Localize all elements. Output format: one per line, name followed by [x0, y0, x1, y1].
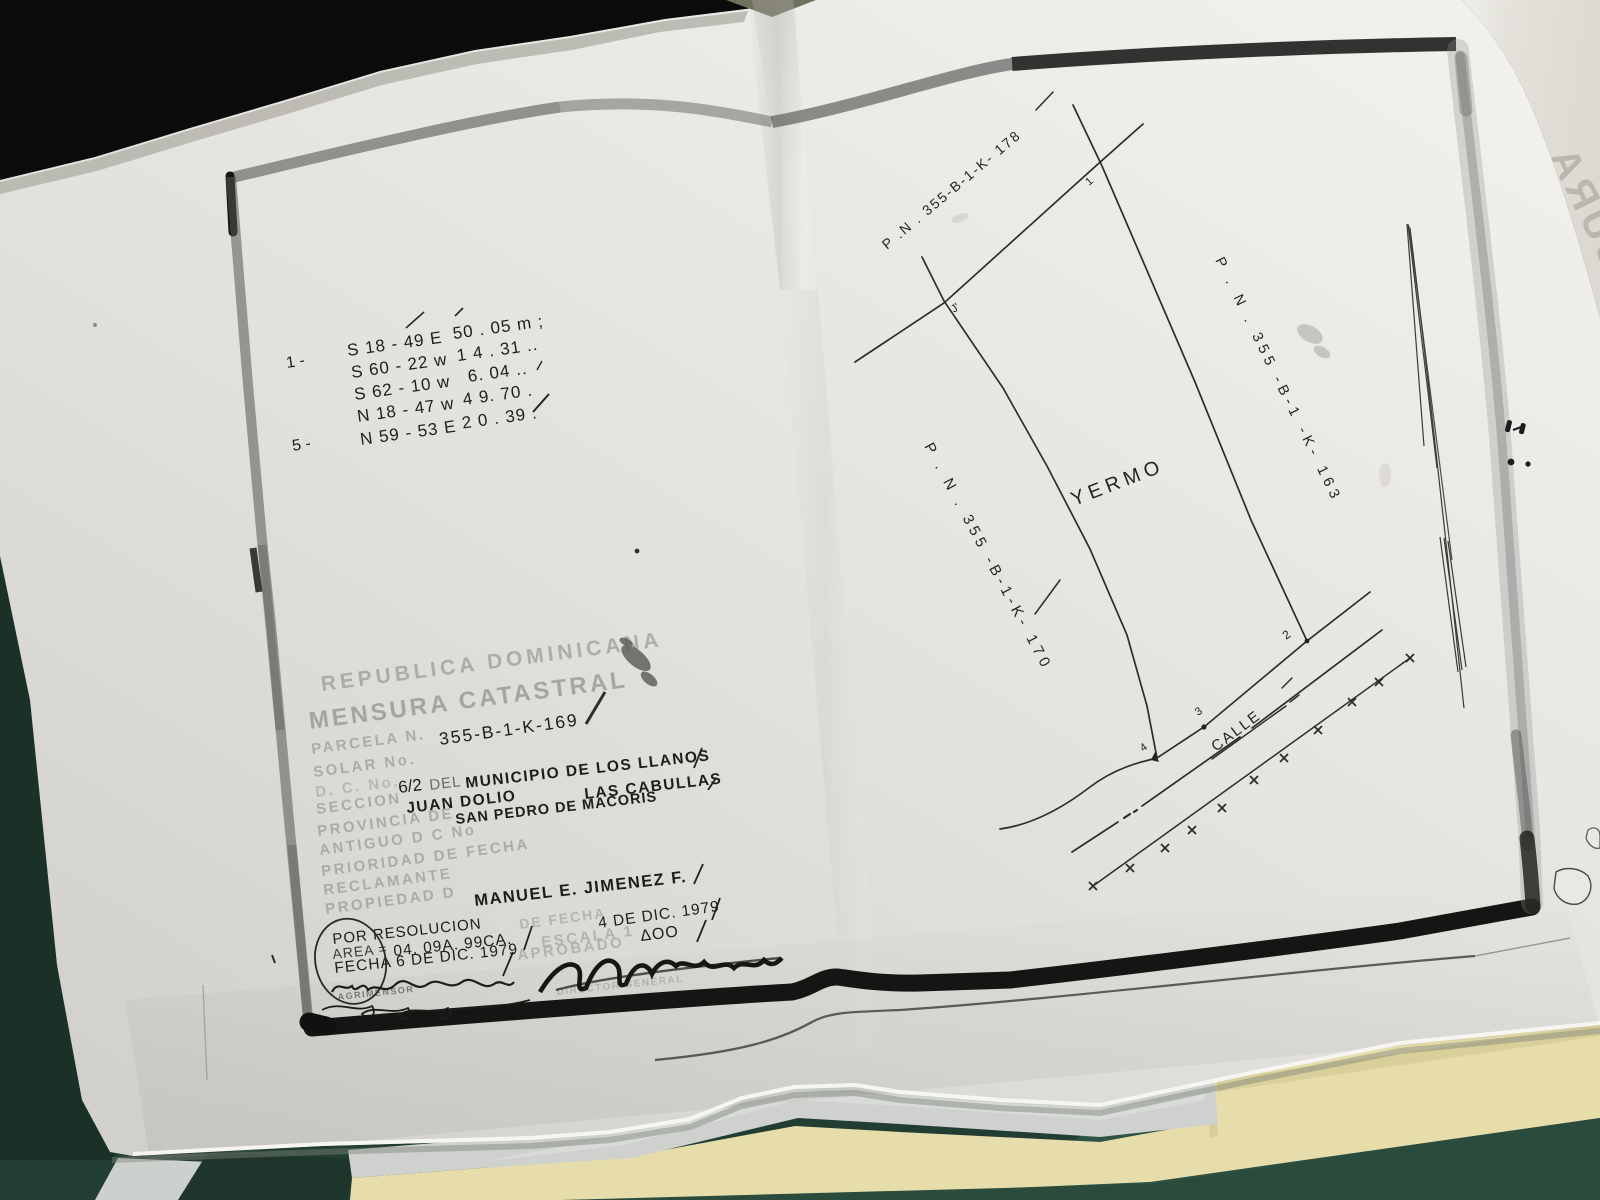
svg-text:5 -: 5 - [291, 435, 312, 455]
svg-text:1 -: 1 - [285, 352, 306, 372]
svg-text:6/2: 6/2 [397, 775, 423, 797]
